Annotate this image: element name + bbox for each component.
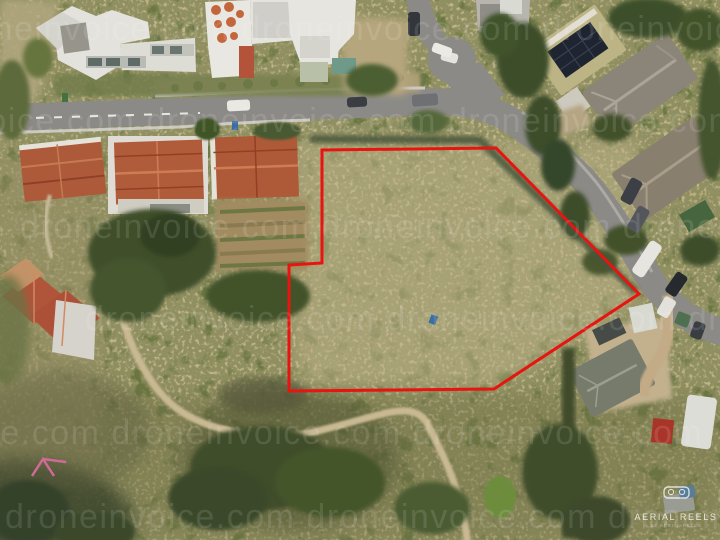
svg-text:droneinvoice.com droneinvoice: droneinvoice.com droneinvoice.com dronei… bbox=[85, 300, 720, 338]
svg-text:AERIAL REELS: AERIAL REELS bbox=[635, 512, 718, 522]
svg-text:droneinvoice.com droneinvoice: droneinvoice.com droneinvoice.com dronei… bbox=[0, 414, 703, 452]
svg-text:droneinvoice.com droneinvoice: droneinvoice.com droneinvoice.com dronei… bbox=[0, 102, 720, 140]
svg-text:droneinvoice.com droneinvoice: droneinvoice.com droneinvoice.com dronei… bbox=[0, 10, 720, 48]
svg-text:droneinvoice.com droneinvoice: droneinvoice.com droneinvoice.com dronei… bbox=[5, 498, 720, 536]
svg-text:BY AERIAL REELS: BY AERIAL REELS bbox=[651, 523, 702, 528]
svg-text:droneinvoice.com droneinvoice: droneinvoice.com droneinvoice.com dronei… bbox=[20, 208, 720, 246]
